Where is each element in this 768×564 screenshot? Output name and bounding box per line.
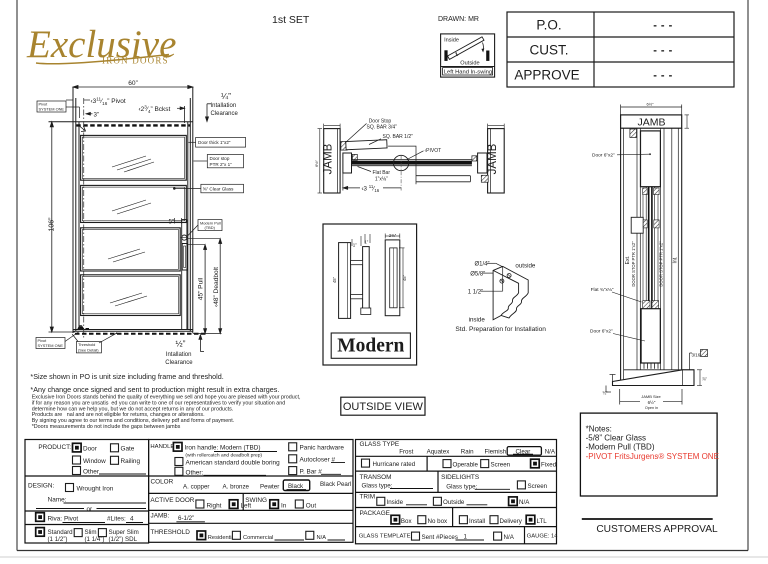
svg-text:½”: ½” bbox=[603, 390, 609, 396]
svg-text:Aquatex: Aquatex bbox=[427, 449, 451, 456]
svg-text:DOOR STOP PTR 1”x2”: DOOR STOP PTR 1”x2” bbox=[631, 241, 636, 287]
svg-text:A. copper: A. copper bbox=[183, 483, 209, 490]
svg-text:6½”: 6½” bbox=[647, 102, 655, 107]
svg-text:‹PIVOT: ‹PIVOT bbox=[425, 148, 442, 154]
svg-text:Fixed: Fixed bbox=[541, 461, 557, 468]
svg-text:GLASS TEMPLATE: GLASS TEMPLATE bbox=[359, 534, 411, 540]
svg-text:-5/8” Clear Glass: -5/8” Clear Glass bbox=[586, 434, 646, 443]
svg-text:TRANSOM: TRANSOM bbox=[360, 474, 392, 481]
svg-text:106”: 106” bbox=[49, 217, 56, 232]
svg-text:IRON DOORS: IRON DOORS bbox=[102, 56, 169, 66]
svg-text:Railing: Railing bbox=[121, 458, 141, 465]
svg-text:Frost: Frost bbox=[399, 449, 413, 456]
svg-text:‹311⁄16” Pivot: ‹311⁄16” Pivot bbox=[91, 97, 126, 106]
svg-text:N/A: N/A bbox=[519, 499, 530, 506]
svg-text:Inside: Inside bbox=[444, 38, 459, 44]
svg-text:Panic hardware: Panic hardware bbox=[300, 445, 345, 452]
svg-text:Door thick 1”x2”: Door thick 1”x2” bbox=[198, 140, 231, 145]
svg-text:OUTSIDE VIEW: OUTSIDE VIEW bbox=[343, 401, 424, 413]
svg-text:LTL: LTL bbox=[537, 518, 548, 525]
svg-text:Intallation: Intallation bbox=[211, 103, 237, 109]
svg-text:Black: Black bbox=[288, 483, 304, 490]
svg-text:4: 4 bbox=[130, 515, 134, 522]
svg-text:- - -: - - - bbox=[653, 20, 673, 32]
svg-text:Standard: Standard bbox=[48, 529, 74, 536]
svg-text:Other: Other bbox=[83, 468, 100, 475]
svg-text:*Notes:: *Notes: bbox=[586, 425, 612, 434]
svg-text:Super Slim: Super Slim bbox=[109, 529, 139, 536]
svg-text:1: 1 bbox=[464, 534, 468, 541]
svg-text:Commercial: Commercial bbox=[243, 535, 273, 541]
svg-text:*Any change once signed and se: *Any change once signed and sent to prod… bbox=[30, 385, 279, 394]
svg-text:N/A: N/A bbox=[504, 534, 515, 541]
svg-text:Rain: Rain bbox=[461, 449, 474, 456]
svg-text:SQ. BAR 3/4”: SQ. BAR 3/4” bbox=[367, 124, 398, 130]
svg-text:-Modern Pull (TBD): -Modern Pull (TBD) bbox=[586, 443, 655, 452]
svg-text:PACKAGE: PACKAGE bbox=[360, 510, 390, 517]
svg-text:In: In bbox=[281, 503, 287, 510]
svg-text:COLOR: COLOR bbox=[151, 479, 174, 486]
svg-text:JAMB: JAMB bbox=[637, 117, 665, 129]
svg-text:SYSTEM ONE: SYSTEM ONE bbox=[39, 107, 65, 112]
svg-text:PTR 2”x 1”: PTR 2”x 1” bbox=[210, 162, 233, 167]
svg-text:Operable: Operable bbox=[453, 461, 479, 468]
svg-text:1st SET: 1st SET bbox=[272, 14, 310, 26]
svg-text:Residential: Residential bbox=[208, 535, 236, 541]
svg-text:- - -: - - - bbox=[653, 70, 673, 82]
svg-text:‹3 11⁄16: ‹3 11⁄16 bbox=[362, 184, 380, 193]
svg-text:⅝” Clear Glass: ⅝” Clear Glass bbox=[203, 187, 234, 192]
svg-text:½”: ½” bbox=[176, 339, 186, 349]
svg-text:Iron handle: Modern (TBD): Iron handle: Modern (TBD) bbox=[185, 444, 261, 451]
svg-text:Modern: Modern bbox=[337, 336, 404, 357]
svg-text:‹48” Deadbolt: ‹48” Deadbolt bbox=[213, 267, 220, 307]
svg-text:2⅜”: 2⅜” bbox=[389, 233, 397, 238]
svg-text:Clearance: Clearance bbox=[165, 360, 193, 366]
svg-text:-PIVOT FritsJurgens® SYSTEM ON: -PIVOT FritsJurgens® SYSTEM ONE bbox=[586, 452, 719, 461]
svg-text:Intallation: Intallation bbox=[166, 352, 192, 358]
svg-text:Flat ¾”x⅛”: Flat ¾”x⅛” bbox=[591, 287, 614, 293]
svg-text:¼”: ¼” bbox=[221, 91, 231, 101]
svg-text:*Size shown in PO is unit size: *Size shown in PO is unit size including… bbox=[30, 372, 223, 381]
svg-text:or: or bbox=[87, 506, 94, 513]
svg-text:No box: No box bbox=[428, 518, 449, 525]
svg-text:DESIGN:: DESIGN: bbox=[28, 483, 55, 490]
svg-text:Inside: Inside bbox=[387, 499, 404, 506]
svg-text:JAMB: JAMB bbox=[487, 143, 499, 174]
svg-text:Pivot: Pivot bbox=[64, 515, 78, 522]
svg-text:6½”: 6½” bbox=[314, 159, 319, 167]
svg-text:5”: 5” bbox=[169, 219, 175, 226]
svg-text:‹23⁄4” Bckst: ‹23⁄4” Bckst bbox=[139, 105, 171, 114]
svg-text:JAMB Size: JAMB Size bbox=[641, 394, 661, 399]
svg-text:Box: Box bbox=[401, 518, 413, 525]
svg-text:Left Hand In-swing: Left Hand In-swing bbox=[444, 70, 492, 76]
svg-text:1”x⅛”: 1”x⅛” bbox=[375, 177, 388, 183]
svg-text:- - -: - - - bbox=[653, 45, 673, 57]
svg-text:Door 6”x2”: Door 6”x2” bbox=[592, 153, 615, 159]
svg-text:Hurricane rated: Hurricane rated bbox=[373, 461, 416, 468]
svg-text:*Doors measurements do not inc: *Doors measurements do not include the g… bbox=[32, 424, 181, 430]
svg-text:Name:: Name: bbox=[48, 497, 67, 504]
svg-text:6-1/2”: 6-1/2” bbox=[178, 515, 194, 522]
svg-text:Riva:: Riva: bbox=[48, 516, 63, 523]
svg-text:SWING: SWING bbox=[245, 497, 267, 504]
svg-text:outside: outside bbox=[515, 263, 536, 270]
svg-text:Std. Preparation for Installat: Std. Preparation for Installation bbox=[455, 326, 546, 333]
svg-text:PRODUCT:: PRODUCT: bbox=[38, 444, 71, 451]
svg-text:Pewter: Pewter bbox=[260, 483, 279, 490]
svg-text:ACTIVE DOOR: ACTIVE DOOR bbox=[150, 497, 194, 504]
svg-text:P. Bar #: P. Bar # bbox=[300, 468, 323, 475]
svg-text:6½”: 6½” bbox=[648, 399, 656, 405]
svg-text:inside: inside bbox=[469, 316, 486, 323]
svg-text:Ø5/8”: Ø5/8” bbox=[470, 271, 485, 277]
svg-text:HANDLE: HANDLE bbox=[150, 444, 174, 450]
svg-text:3”: 3” bbox=[94, 112, 100, 119]
svg-text:(with rollercatch and deadbolt: (with rollercatch and deadbolt prep) bbox=[185, 453, 262, 459]
svg-text:Clearance: Clearance bbox=[211, 111, 239, 117]
svg-text:N/A: N/A bbox=[317, 535, 327, 541]
svg-text:45”: 45” bbox=[332, 276, 337, 283]
svg-text:Glass type:: Glass type: bbox=[446, 483, 477, 490]
svg-text:(1/2”) SDL: (1/2”) SDL bbox=[109, 536, 138, 543]
svg-text:Slim: Slim bbox=[85, 529, 97, 536]
svg-text:Screen: Screen bbox=[491, 461, 511, 468]
svg-text:Outside: Outside bbox=[460, 60, 479, 66]
svg-text:60”: 60” bbox=[128, 80, 138, 87]
svg-text:CUSTOMERS APPROVAL: CUSTOMERS APPROVAL bbox=[596, 524, 718, 535]
svg-text:Window: Window bbox=[83, 458, 106, 465]
svg-text:APPROVE: APPROVE bbox=[514, 68, 579, 83]
svg-text:(See Detail): (See Detail) bbox=[78, 347, 99, 352]
svg-text:Open in: Open in bbox=[645, 406, 658, 410]
svg-text:Right: Right bbox=[207, 503, 222, 510]
svg-text:Ø1/4”: Ø1/4” bbox=[475, 261, 490, 267]
svg-text:Screen: Screen bbox=[528, 483, 548, 490]
svg-text:1”: 1” bbox=[353, 243, 358, 248]
svg-text:Glass type:: Glass type: bbox=[362, 483, 393, 490]
svg-text:Autocloser #: Autocloser # bbox=[300, 457, 336, 464]
svg-text:1”: 1” bbox=[364, 240, 369, 245]
svg-text:Flat Bar: Flat Bar bbox=[373, 170, 391, 176]
svg-text:45” Pull: 45” Pull bbox=[198, 277, 205, 300]
svg-text:Delivery: Delivery bbox=[500, 518, 523, 525]
svg-text:(TBD): (TBD) bbox=[205, 225, 216, 230]
svg-text:DOOR STOP PTR 1”x2”: DOOR STOP PTR 1”x2” bbox=[659, 241, 664, 287]
svg-text:Gate: Gate bbox=[121, 446, 135, 453]
svg-text:SIDELIGHTS: SIDELIGHTS bbox=[441, 474, 479, 481]
svg-text:JAMB:: JAMB: bbox=[151, 513, 170, 520]
svg-text:Door 6”x2”: Door 6”x2” bbox=[590, 329, 613, 335]
svg-text:Other:: Other: bbox=[186, 469, 204, 476]
svg-text:JAMB: JAMB bbox=[323, 143, 335, 174]
svg-text:Wrought Iron: Wrought Iron bbox=[77, 486, 114, 493]
svg-text:Flemish: Flemish bbox=[485, 449, 507, 456]
svg-text:Door stop: Door stop bbox=[210, 156, 230, 161]
svg-text:3/16: 3/16 bbox=[692, 353, 701, 358]
svg-text:⅞”: ⅞” bbox=[702, 377, 707, 382]
svg-text:Out: Out bbox=[306, 503, 317, 510]
svg-text:N/A: N/A bbox=[545, 449, 556, 456]
svg-text:GLASS TYPE: GLASS TYPE bbox=[360, 441, 400, 448]
svg-text:Door: Door bbox=[83, 446, 98, 453]
svg-text:Black Pearl: Black Pearl bbox=[320, 481, 351, 488]
svg-text:(1 1/2”): (1 1/2”) bbox=[48, 536, 68, 543]
svg-text:TRIM: TRIM bbox=[360, 494, 376, 501]
svg-text:45”: 45” bbox=[402, 274, 407, 281]
svg-text:Sent #Pieces: Sent #Pieces bbox=[422, 534, 458, 541]
svg-text:SQ. BAR 1/2”: SQ. BAR 1/2” bbox=[383, 134, 414, 140]
svg-text:A. bronze: A. bronze bbox=[223, 483, 250, 490]
svg-text:SYSTEM ONE: SYSTEM ONE bbox=[38, 343, 64, 348]
svg-text:American standard double borin: American standard double boring bbox=[186, 460, 281, 467]
svg-text:#Lites:: #Lites: bbox=[107, 516, 126, 523]
svg-text:GAUGE: 14: GAUGE: 14 bbox=[527, 534, 558, 540]
svg-text:THRESHOLD: THRESHOLD bbox=[150, 529, 190, 536]
svg-text:DRAWN: MR: DRAWN: MR bbox=[438, 16, 479, 23]
svg-text:Install: Install bbox=[469, 518, 485, 525]
svg-text:CUST.: CUST. bbox=[529, 43, 568, 58]
svg-text:Outside: Outside bbox=[443, 499, 465, 506]
svg-text:Int.: Int. bbox=[673, 257, 679, 264]
svg-text:1 1/2”: 1 1/2” bbox=[468, 289, 483, 295]
svg-text:P.O.: P.O. bbox=[536, 18, 561, 33]
